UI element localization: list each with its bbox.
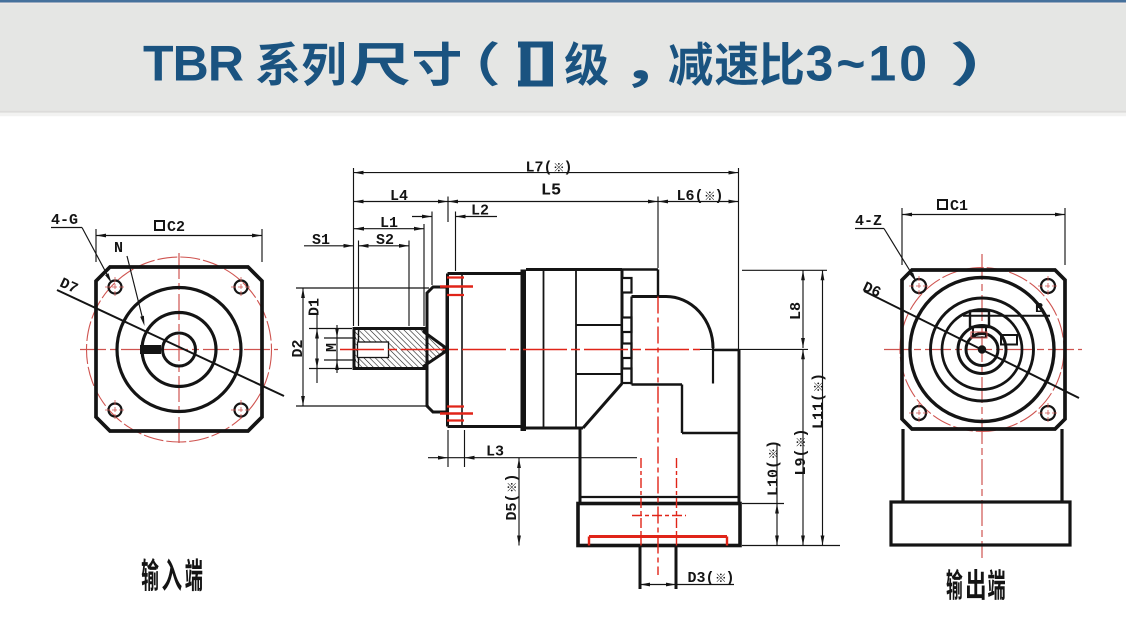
svg-text:4-G: 4-G: [51, 212, 78, 229]
svg-text:L9(: L9(: [793, 448, 810, 475]
svg-text:L3: L3: [486, 443, 504, 460]
svg-text:D3(: D3(: [688, 570, 715, 587]
svg-text:N: N: [114, 240, 123, 257]
svg-text:): ): [765, 440, 782, 449]
svg-text:L7(: L7(: [526, 159, 553, 176]
svg-text:): ): [793, 428, 810, 437]
svg-text:S1: S1: [312, 232, 330, 249]
svg-text:M: M: [324, 343, 341, 352]
svg-text:L4: L4: [390, 188, 408, 205]
svg-text:): ): [810, 373, 827, 382]
svg-text:): ): [726, 570, 735, 587]
svg-text:): ): [715, 188, 724, 205]
svg-text:L5: L5: [541, 182, 561, 201]
svg-text:): ): [504, 473, 521, 482]
svg-text:L6(: L6(: [677, 188, 704, 205]
svg-text:L11(: L11(: [810, 393, 827, 429]
svg-text:C1: C1: [950, 198, 968, 215]
svg-text:L10(: L10(: [765, 460, 782, 496]
svg-text:TBR: TBR: [143, 36, 244, 92]
svg-text:B: B: [1035, 301, 1044, 317]
svg-text:C2: C2: [167, 219, 185, 236]
svg-text:S2: S2: [376, 232, 394, 249]
svg-text:D5(: D5(: [504, 493, 521, 520]
svg-text:L8: L8: [788, 302, 805, 320]
svg-text:L2: L2: [471, 202, 489, 219]
svg-text:4-Z: 4-Z: [855, 213, 882, 230]
svg-text:L1: L1: [380, 215, 398, 232]
svg-text:D1: D1: [306, 298, 323, 316]
svg-text:D2: D2: [290, 339, 307, 357]
svg-text:): ): [564, 159, 573, 176]
